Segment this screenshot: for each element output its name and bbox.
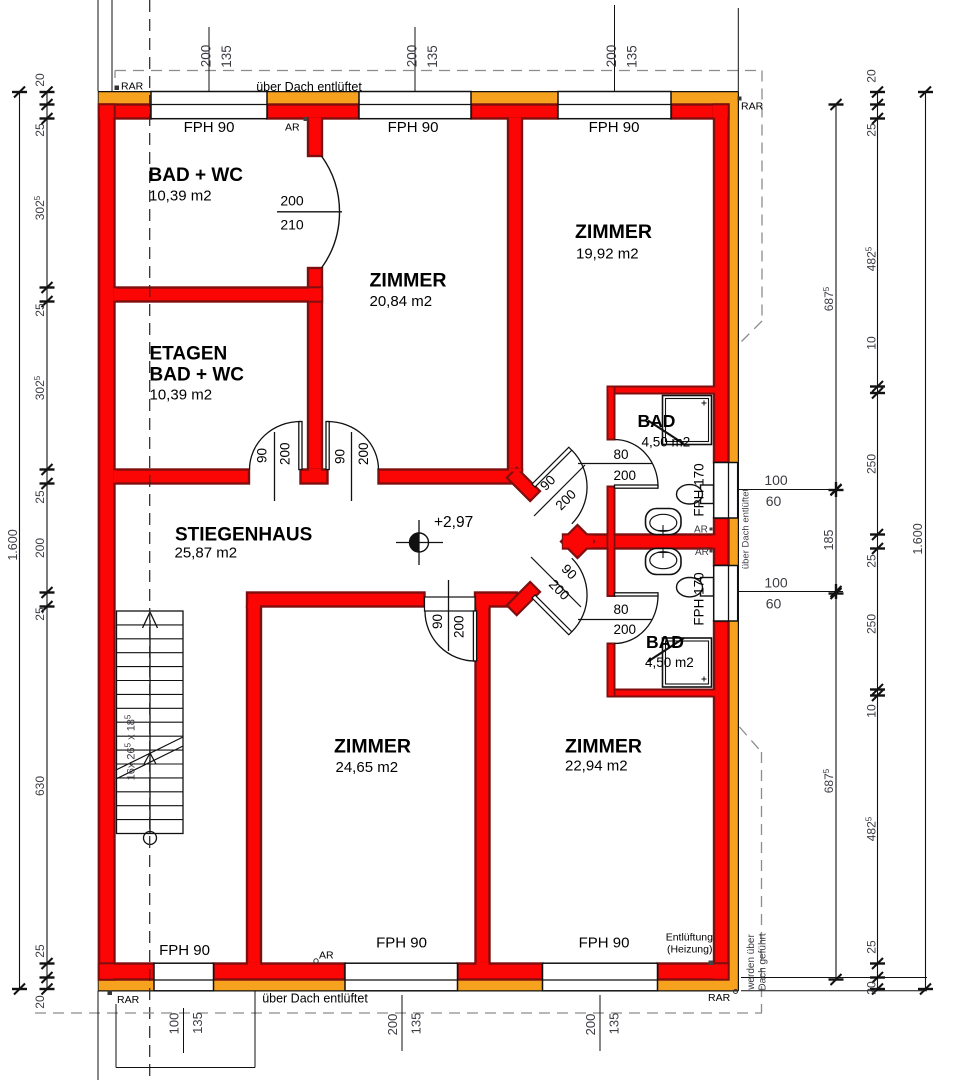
svg-text:4,50 m2: 4,50 m2 xyxy=(645,655,694,670)
svg-text:über Dach entlüftet: über Dach entlüftet xyxy=(256,80,362,94)
svg-text:ZIMMER: ZIMMER xyxy=(565,736,642,758)
svg-text:90: 90 xyxy=(255,448,270,463)
svg-text:20,84 m2: 20,84 m2 xyxy=(370,293,433,310)
svg-text:60: 60 xyxy=(766,596,782,612)
svg-text:FPH 90: FPH 90 xyxy=(159,942,210,959)
svg-text:10,39 m2: 10,39 m2 xyxy=(149,188,212,205)
svg-text:4,50 m2: 4,50 m2 xyxy=(642,435,691,450)
svg-text:135: 135 xyxy=(425,45,440,68)
svg-text:BAD + WC: BAD + WC xyxy=(149,165,244,186)
svg-text:19,92 m2: 19,92 m2 xyxy=(576,246,639,263)
svg-text:25: 25 xyxy=(865,940,879,954)
svg-text:25: 25 xyxy=(33,123,47,137)
svg-text:+2,97: +2,97 xyxy=(434,514,473,531)
svg-text:FPH 90: FPH 90 xyxy=(376,935,427,952)
svg-text:200: 200 xyxy=(614,622,637,637)
svg-text:BAD + WC: BAD + WC xyxy=(150,365,245,386)
svg-text:FPH 90: FPH 90 xyxy=(579,935,630,952)
svg-text:25: 25 xyxy=(33,607,47,621)
svg-text:AR: AR xyxy=(694,525,708,536)
svg-text:90: 90 xyxy=(430,614,445,629)
svg-text:STIEGENHAUS: STIEGENHAUS xyxy=(175,525,312,546)
svg-text:RAR: RAR xyxy=(741,101,764,113)
svg-text:210: 210 xyxy=(280,217,304,233)
svg-text:FPH 170: FPH 170 xyxy=(692,463,707,516)
svg-text:BAD: BAD xyxy=(638,411,676,431)
svg-text:25: 25 xyxy=(865,123,879,137)
svg-text:ZIMMER: ZIMMER xyxy=(334,736,411,758)
svg-text:ETAGEN: ETAGEN xyxy=(150,344,228,365)
svg-text:RAR: RAR xyxy=(117,994,140,1006)
svg-text:135: 135 xyxy=(219,45,234,68)
svg-text:24,65 m2: 24,65 m2 xyxy=(336,759,399,776)
svg-text:100: 100 xyxy=(167,1013,182,1035)
svg-text:250: 250 xyxy=(865,614,879,634)
svg-text:135: 135 xyxy=(409,1013,424,1035)
svg-text:90: 90 xyxy=(333,449,348,464)
svg-text:RAR: RAR xyxy=(708,992,731,1004)
svg-text:60: 60 xyxy=(766,493,782,509)
svg-text:AR: AR xyxy=(319,950,334,962)
svg-text:20: 20 xyxy=(865,981,879,995)
svg-text:630: 630 xyxy=(33,776,47,796)
svg-text:Dach geführt: Dach geführt xyxy=(758,933,769,990)
svg-text:ZIMMER: ZIMMER xyxy=(370,270,447,292)
svg-text:10: 10 xyxy=(865,336,879,350)
svg-text:185: 185 xyxy=(822,530,836,551)
svg-text:135: 135 xyxy=(607,1013,622,1035)
svg-text:200: 200 xyxy=(452,615,467,638)
svg-text:AR: AR xyxy=(695,547,709,558)
svg-text:RAR: RAR xyxy=(121,81,144,93)
svg-text:10,39 m2: 10,39 m2 xyxy=(150,387,213,404)
svg-text:1.600: 1.600 xyxy=(6,529,20,560)
svg-text:200: 200 xyxy=(604,45,619,68)
svg-text:200: 200 xyxy=(583,1014,598,1036)
svg-text:(Heizung): (Heizung) xyxy=(667,944,713,956)
svg-text:200: 200 xyxy=(614,468,637,483)
svg-text:Entlüftung: Entlüftung xyxy=(666,932,713,944)
svg-text:135: 135 xyxy=(625,45,640,68)
svg-text:10: 10 xyxy=(865,704,879,718)
svg-text:1.600: 1.600 xyxy=(911,523,925,554)
svg-text:BAD: BAD xyxy=(646,632,684,652)
svg-text:80: 80 xyxy=(614,602,629,617)
svg-text:200: 200 xyxy=(33,538,47,558)
svg-text:ZIMMER: ZIMMER xyxy=(575,221,652,243)
svg-text:FPH 90: FPH 90 xyxy=(589,119,640,136)
svg-text:200: 200 xyxy=(280,193,304,209)
svg-text:250: 250 xyxy=(865,454,879,474)
svg-text:FPH 90: FPH 90 xyxy=(388,119,439,136)
svg-text:25: 25 xyxy=(33,303,47,317)
svg-text:25: 25 xyxy=(33,944,47,958)
svg-text:100: 100 xyxy=(764,472,788,488)
svg-text:200: 200 xyxy=(199,45,214,68)
svg-text:FPH 170: FPH 170 xyxy=(692,572,707,625)
svg-text:100: 100 xyxy=(764,575,788,591)
svg-text:25,87 m2: 25,87 m2 xyxy=(175,545,238,562)
svg-text:über Dach entlüftet: über Dach entlüftet xyxy=(741,489,752,570)
svg-text:135: 135 xyxy=(190,1012,205,1034)
svg-text:200: 200 xyxy=(405,45,420,68)
svg-text:80: 80 xyxy=(614,447,629,462)
svg-text:200: 200 xyxy=(356,442,371,465)
svg-text:werden über: werden über xyxy=(746,934,757,991)
svg-text:über Dach entlüftet: über Dach entlüftet xyxy=(262,992,368,1006)
svg-text:AR: AR xyxy=(285,122,300,134)
svg-text:20: 20 xyxy=(33,995,47,1009)
svg-text:200: 200 xyxy=(385,1014,400,1036)
svg-text:25: 25 xyxy=(865,554,879,568)
svg-text:200: 200 xyxy=(278,442,293,465)
svg-text:22,94 m2: 22,94 m2 xyxy=(565,758,628,775)
svg-text:20: 20 xyxy=(33,73,47,87)
svg-text:20: 20 xyxy=(865,69,879,83)
svg-text:25: 25 xyxy=(33,490,47,504)
svg-text:FPH 90: FPH 90 xyxy=(184,119,235,136)
